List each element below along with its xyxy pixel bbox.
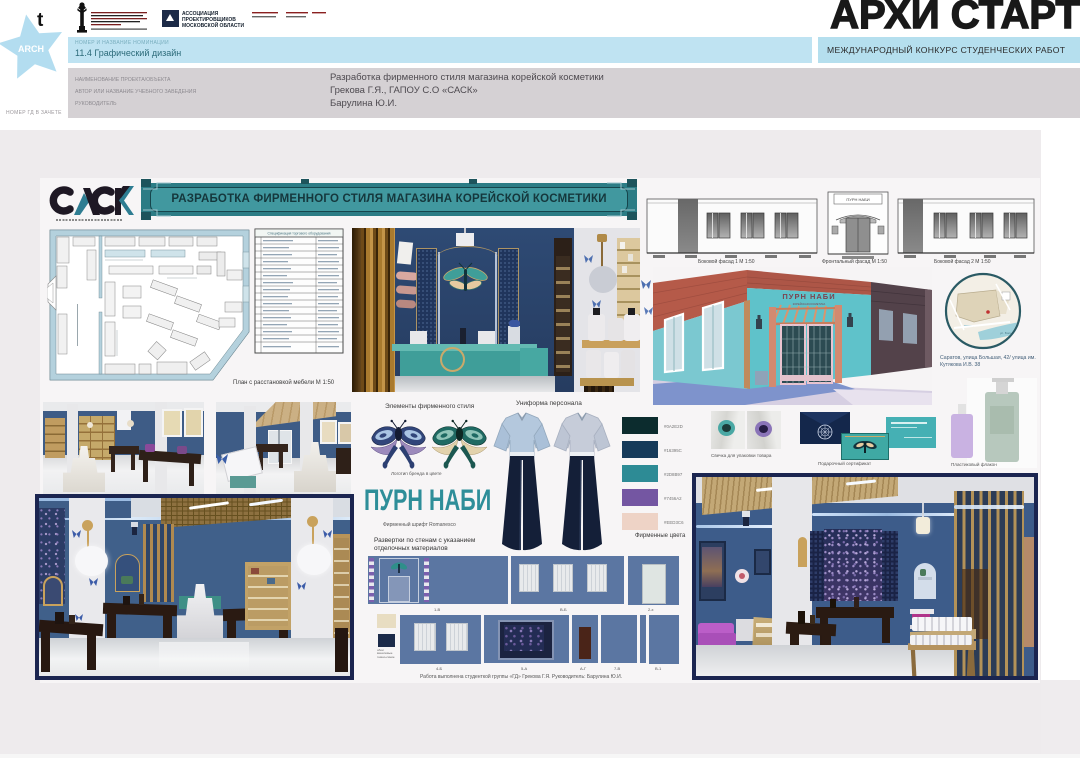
svg-text:Спецификация торгового оборудо: Спецификация торгового оборудования bbox=[268, 232, 331, 236]
svg-text:ПУРН НАБИ: ПУРН НАБИ bbox=[782, 292, 835, 301]
svg-text:КОРЕЙСКАЯ КОСМЕТИКА: КОРЕЙСКАЯ КОСМЕТИКА bbox=[793, 302, 826, 306]
svg-text:ПУРН НАБИ: ПУРН НАБИ bbox=[846, 197, 869, 202]
svg-text:ул. Большая: ул. Большая bbox=[1000, 331, 1018, 335]
svg-text:ARCH: ARCH bbox=[18, 44, 44, 54]
